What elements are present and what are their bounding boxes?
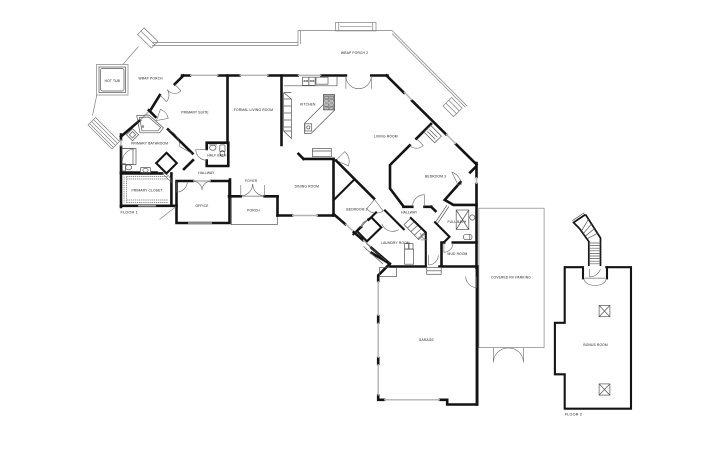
svg-text:GARAGE: GARAGE: [419, 338, 435, 342]
svg-text:FULL BATH: FULL BATH: [448, 220, 467, 224]
svg-text:PRIMARY CLOSET: PRIMARY CLOSET: [131, 189, 162, 193]
svg-text:FLOOR 1: FLOOR 1: [121, 211, 139, 215]
svg-text:HALLWAY: HALLWAY: [401, 211, 418, 215]
svg-text:LAUNDRY ROOM: LAUNDRY ROOM: [381, 241, 410, 245]
svg-text:FORMAL LIVING ROOM: FORMAL LIVING ROOM: [234, 108, 273, 112]
svg-text:BEDROOM 3: BEDROOM 3: [425, 175, 446, 179]
svg-text:FLOOR 2: FLOOR 2: [565, 413, 583, 417]
svg-text:PRIMARY BATHROOM: PRIMARY BATHROOM: [131, 141, 168, 145]
svg-text:HALF BATH: HALF BATH: [207, 154, 227, 158]
svg-text:OFFICE: OFFICE: [196, 204, 210, 208]
svg-text:WRAP PORCH: WRAP PORCH: [139, 77, 164, 81]
svg-text:KITCHEN: KITCHEN: [300, 103, 316, 107]
svg-text:DINING ROOM: DINING ROOM: [295, 185, 319, 189]
svg-text:HALLWAY: HALLWAY: [198, 171, 215, 175]
svg-text:BEDROOM 2: BEDROOM 2: [346, 208, 367, 212]
svg-text:PORCH: PORCH: [247, 209, 260, 213]
svg-text:WRAP PORCH 2: WRAP PORCH 2: [341, 51, 368, 55]
svg-text:FOYER: FOYER: [245, 179, 258, 183]
svg-text:MUD ROOM: MUD ROOM: [448, 252, 468, 256]
svg-text:PRIMARY SUITE: PRIMARY SUITE: [181, 110, 209, 114]
svg-text:BONUS ROOM: BONUS ROOM: [583, 343, 607, 347]
svg-text:LIVING ROOM: LIVING ROOM: [374, 135, 398, 139]
svg-text:COVERED RV PARKING: COVERED RV PARKING: [491, 276, 531, 280]
svg-text:HOT TUB: HOT TUB: [105, 79, 121, 83]
